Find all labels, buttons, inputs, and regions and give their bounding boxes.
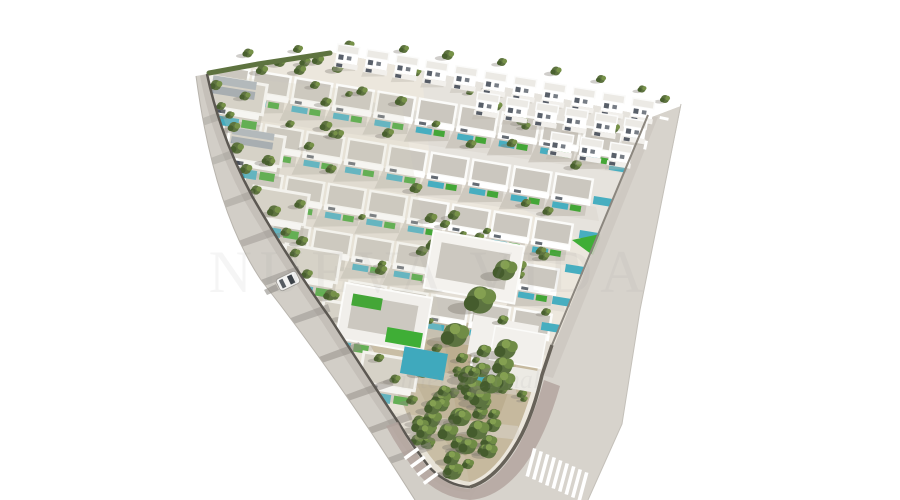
svg-text:internacional: internacional bbox=[400, 365, 540, 394]
svg-text:NUEVA VIDA: NUEVA VIDA bbox=[209, 239, 652, 305]
